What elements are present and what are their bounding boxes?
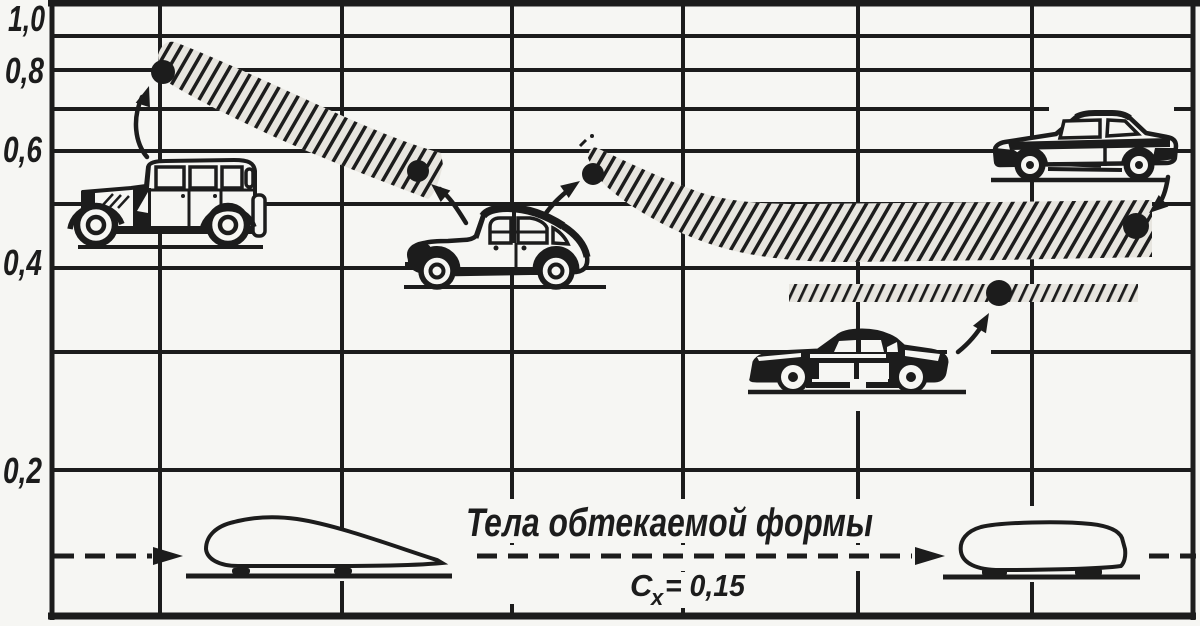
svg-text:0,6: 0,6 (3, 129, 43, 170)
svg-text:x: x (650, 585, 664, 610)
svg-text:= 0,15: = 0,15 (665, 568, 746, 603)
svg-text:1,0: 1,0 (8, 0, 45, 39)
svg-text:0,2: 0,2 (3, 450, 42, 491)
svg-text:C: C (630, 568, 653, 603)
svg-text:Тела обтекаемой формы: Тела обтекаемой формы (466, 501, 873, 545)
svg-text:0,4: 0,4 (3, 242, 42, 283)
svg-text:0,8: 0,8 (5, 50, 44, 91)
